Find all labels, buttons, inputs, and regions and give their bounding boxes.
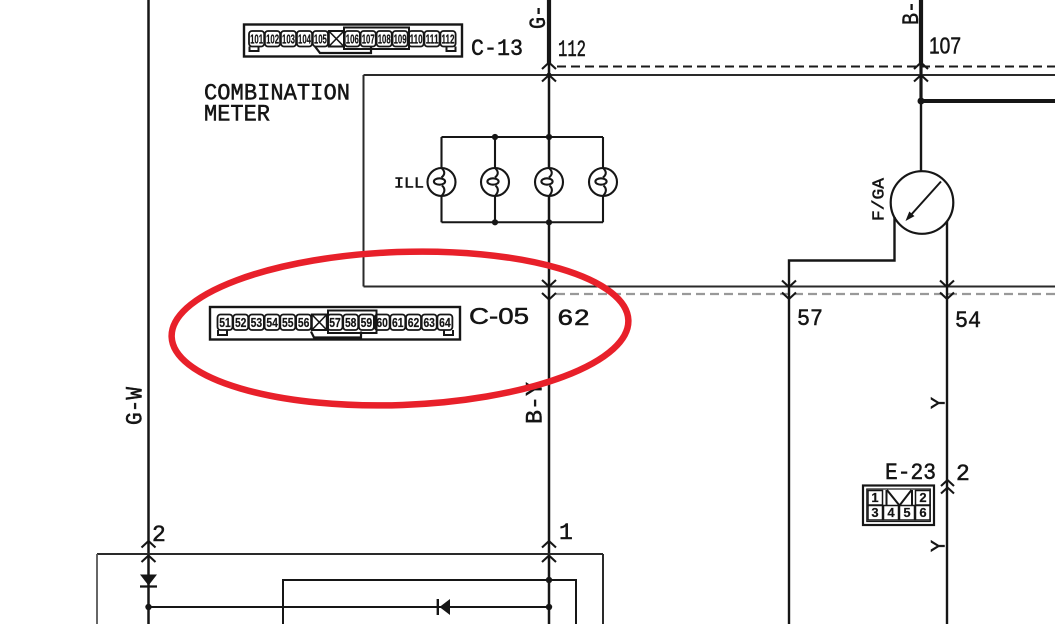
svg-text:56: 56 [298,315,310,330]
svg-text:E-23: E-23 [885,460,936,486]
svg-text:106: 106 [346,32,359,47]
svg-text:60: 60 [376,315,388,330]
svg-text:112: 112 [442,32,455,47]
svg-text:1: 1 [559,520,573,546]
svg-text:2: 2 [919,490,926,505]
svg-text:3: 3 [871,505,878,520]
svg-text:52: 52 [235,315,247,330]
svg-text:108: 108 [378,32,391,47]
svg-text:4: 4 [887,505,895,520]
svg-text:62: 62 [557,306,590,332]
svg-text:F/GA: F/GA [871,177,890,221]
svg-text:107: 107 [929,33,961,59]
svg-text:2: 2 [152,522,166,548]
svg-text:102: 102 [266,32,279,47]
svg-text:5: 5 [903,505,910,520]
svg-text:61: 61 [392,315,404,330]
svg-text:55: 55 [282,315,294,330]
svg-text:Y: Y [929,540,952,552]
svg-text:B-: B- [899,1,925,25]
svg-text:G-: G- [526,5,552,29]
svg-text:6: 6 [919,505,926,520]
svg-text:105: 105 [314,32,327,47]
svg-text:Y: Y [929,397,952,409]
svg-text:54: 54 [266,315,278,330]
svg-text:62: 62 [408,315,420,330]
svg-text:107: 107 [362,32,375,47]
svg-text:2: 2 [956,461,970,487]
svg-text:57: 57 [797,306,823,332]
svg-text:104: 104 [298,32,311,47]
svg-text:111: 111 [426,32,439,47]
svg-text:57: 57 [329,315,341,330]
svg-text:63: 63 [423,315,435,330]
svg-text:110: 110 [410,32,423,47]
svg-text:C-13: C-13 [471,36,523,62]
svg-text:59: 59 [361,315,373,330]
svg-text:54: 54 [955,308,981,334]
svg-text:64: 64 [439,315,451,330]
svg-text:1: 1 [871,490,878,505]
svg-text:51: 51 [219,315,231,330]
svg-text:G-W: G-W [123,387,149,425]
svg-text:101: 101 [250,32,263,47]
svg-text:109: 109 [394,32,407,47]
svg-text:112: 112 [558,37,586,63]
svg-text:METER: METER [204,102,270,128]
svg-text:58: 58 [345,315,357,330]
svg-text:53: 53 [251,315,263,330]
svg-text:C-05: C-05 [469,303,529,329]
svg-text:ILL: ILL [394,176,424,193]
svg-text:103: 103 [282,32,295,47]
